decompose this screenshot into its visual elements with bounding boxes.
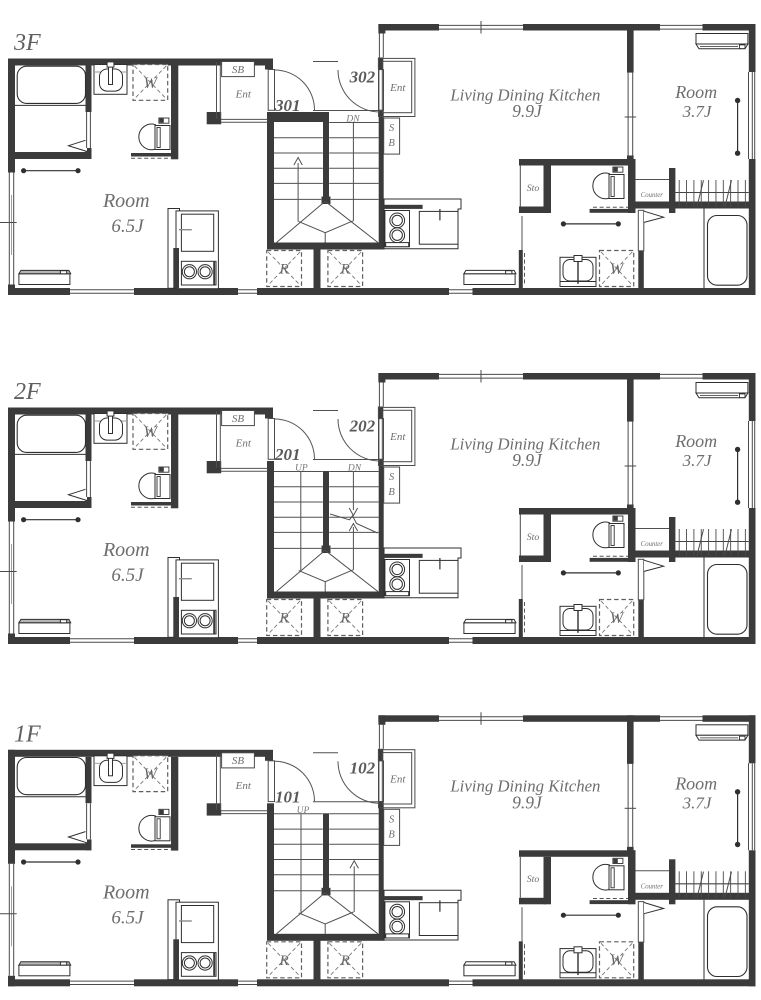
- svg-text:R: R: [340, 953, 350, 969]
- svg-text:Room: Room: [674, 82, 717, 102]
- svg-text:Counter: Counter: [641, 883, 664, 890]
- svg-text:DN: DN: [345, 115, 360, 125]
- svg-text:UP: UP: [295, 464, 308, 474]
- svg-text:Ent: Ent: [235, 780, 252, 792]
- svg-text:B: B: [388, 487, 395, 498]
- svg-text:W: W: [610, 261, 625, 278]
- svg-text:Room: Room: [102, 881, 150, 903]
- svg-text:Ent: Ent: [389, 82, 406, 94]
- svg-text:9.9J: 9.9J: [512, 101, 543, 121]
- svg-text:6.5J: 6.5J: [111, 565, 145, 586]
- svg-text:W: W: [144, 766, 159, 783]
- svg-text:Ent: Ent: [389, 431, 406, 443]
- svg-text:6.5J: 6.5J: [111, 216, 145, 237]
- svg-text:301: 301: [274, 96, 301, 115]
- svg-text:102: 102: [350, 759, 376, 778]
- svg-text:9.9J: 9.9J: [512, 450, 543, 470]
- svg-text:101: 101: [275, 787, 301, 806]
- svg-text:Sto: Sto: [527, 532, 540, 543]
- svg-text:302: 302: [349, 67, 376, 86]
- svg-text:S: S: [389, 123, 395, 134]
- svg-text:DN: DN: [347, 464, 362, 474]
- svg-text:SB: SB: [232, 413, 245, 425]
- svg-text:UP: UP: [297, 806, 310, 816]
- svg-text:Ent: Ent: [235, 89, 252, 101]
- svg-text:Room: Room: [674, 431, 717, 451]
- svg-text:R: R: [279, 262, 289, 278]
- svg-text:202: 202: [349, 416, 376, 435]
- svg-text:R: R: [340, 611, 350, 627]
- svg-text:9.9J: 9.9J: [512, 793, 543, 813]
- svg-text:3.7J: 3.7J: [682, 451, 713, 470]
- svg-text:201: 201: [274, 445, 301, 464]
- svg-text:6.5J: 6.5J: [111, 907, 145, 928]
- svg-text:2F: 2F: [14, 379, 41, 405]
- svg-text:Ent: Ent: [389, 773, 406, 785]
- svg-text:W: W: [610, 952, 625, 969]
- svg-text:B: B: [388, 829, 395, 840]
- svg-text:S: S: [389, 472, 395, 483]
- svg-text:R: R: [279, 611, 289, 627]
- svg-text:Sto: Sto: [527, 874, 540, 885]
- svg-text:S: S: [389, 814, 395, 825]
- svg-text:Room: Room: [102, 539, 150, 561]
- svg-text:B: B: [388, 138, 395, 149]
- svg-text:W: W: [144, 75, 159, 92]
- svg-text:Room: Room: [674, 774, 717, 794]
- svg-text:W: W: [610, 610, 625, 627]
- svg-text:R: R: [340, 262, 350, 278]
- svg-text:SB: SB: [232, 755, 245, 767]
- svg-text:Counter: Counter: [641, 192, 664, 199]
- svg-text:R: R: [279, 953, 289, 969]
- svg-text:Sto: Sto: [527, 183, 540, 194]
- svg-text:3.7J: 3.7J: [682, 793, 713, 812]
- svg-text:Counter: Counter: [641, 541, 664, 548]
- svg-text:Room: Room: [102, 190, 150, 212]
- svg-text:3.7J: 3.7J: [682, 102, 713, 121]
- svg-text:W: W: [144, 424, 159, 441]
- svg-text:SB: SB: [232, 64, 245, 76]
- svg-text:3F: 3F: [13, 30, 41, 56]
- svg-text:Ent: Ent: [235, 438, 252, 450]
- svg-text:1F: 1F: [14, 721, 41, 747]
